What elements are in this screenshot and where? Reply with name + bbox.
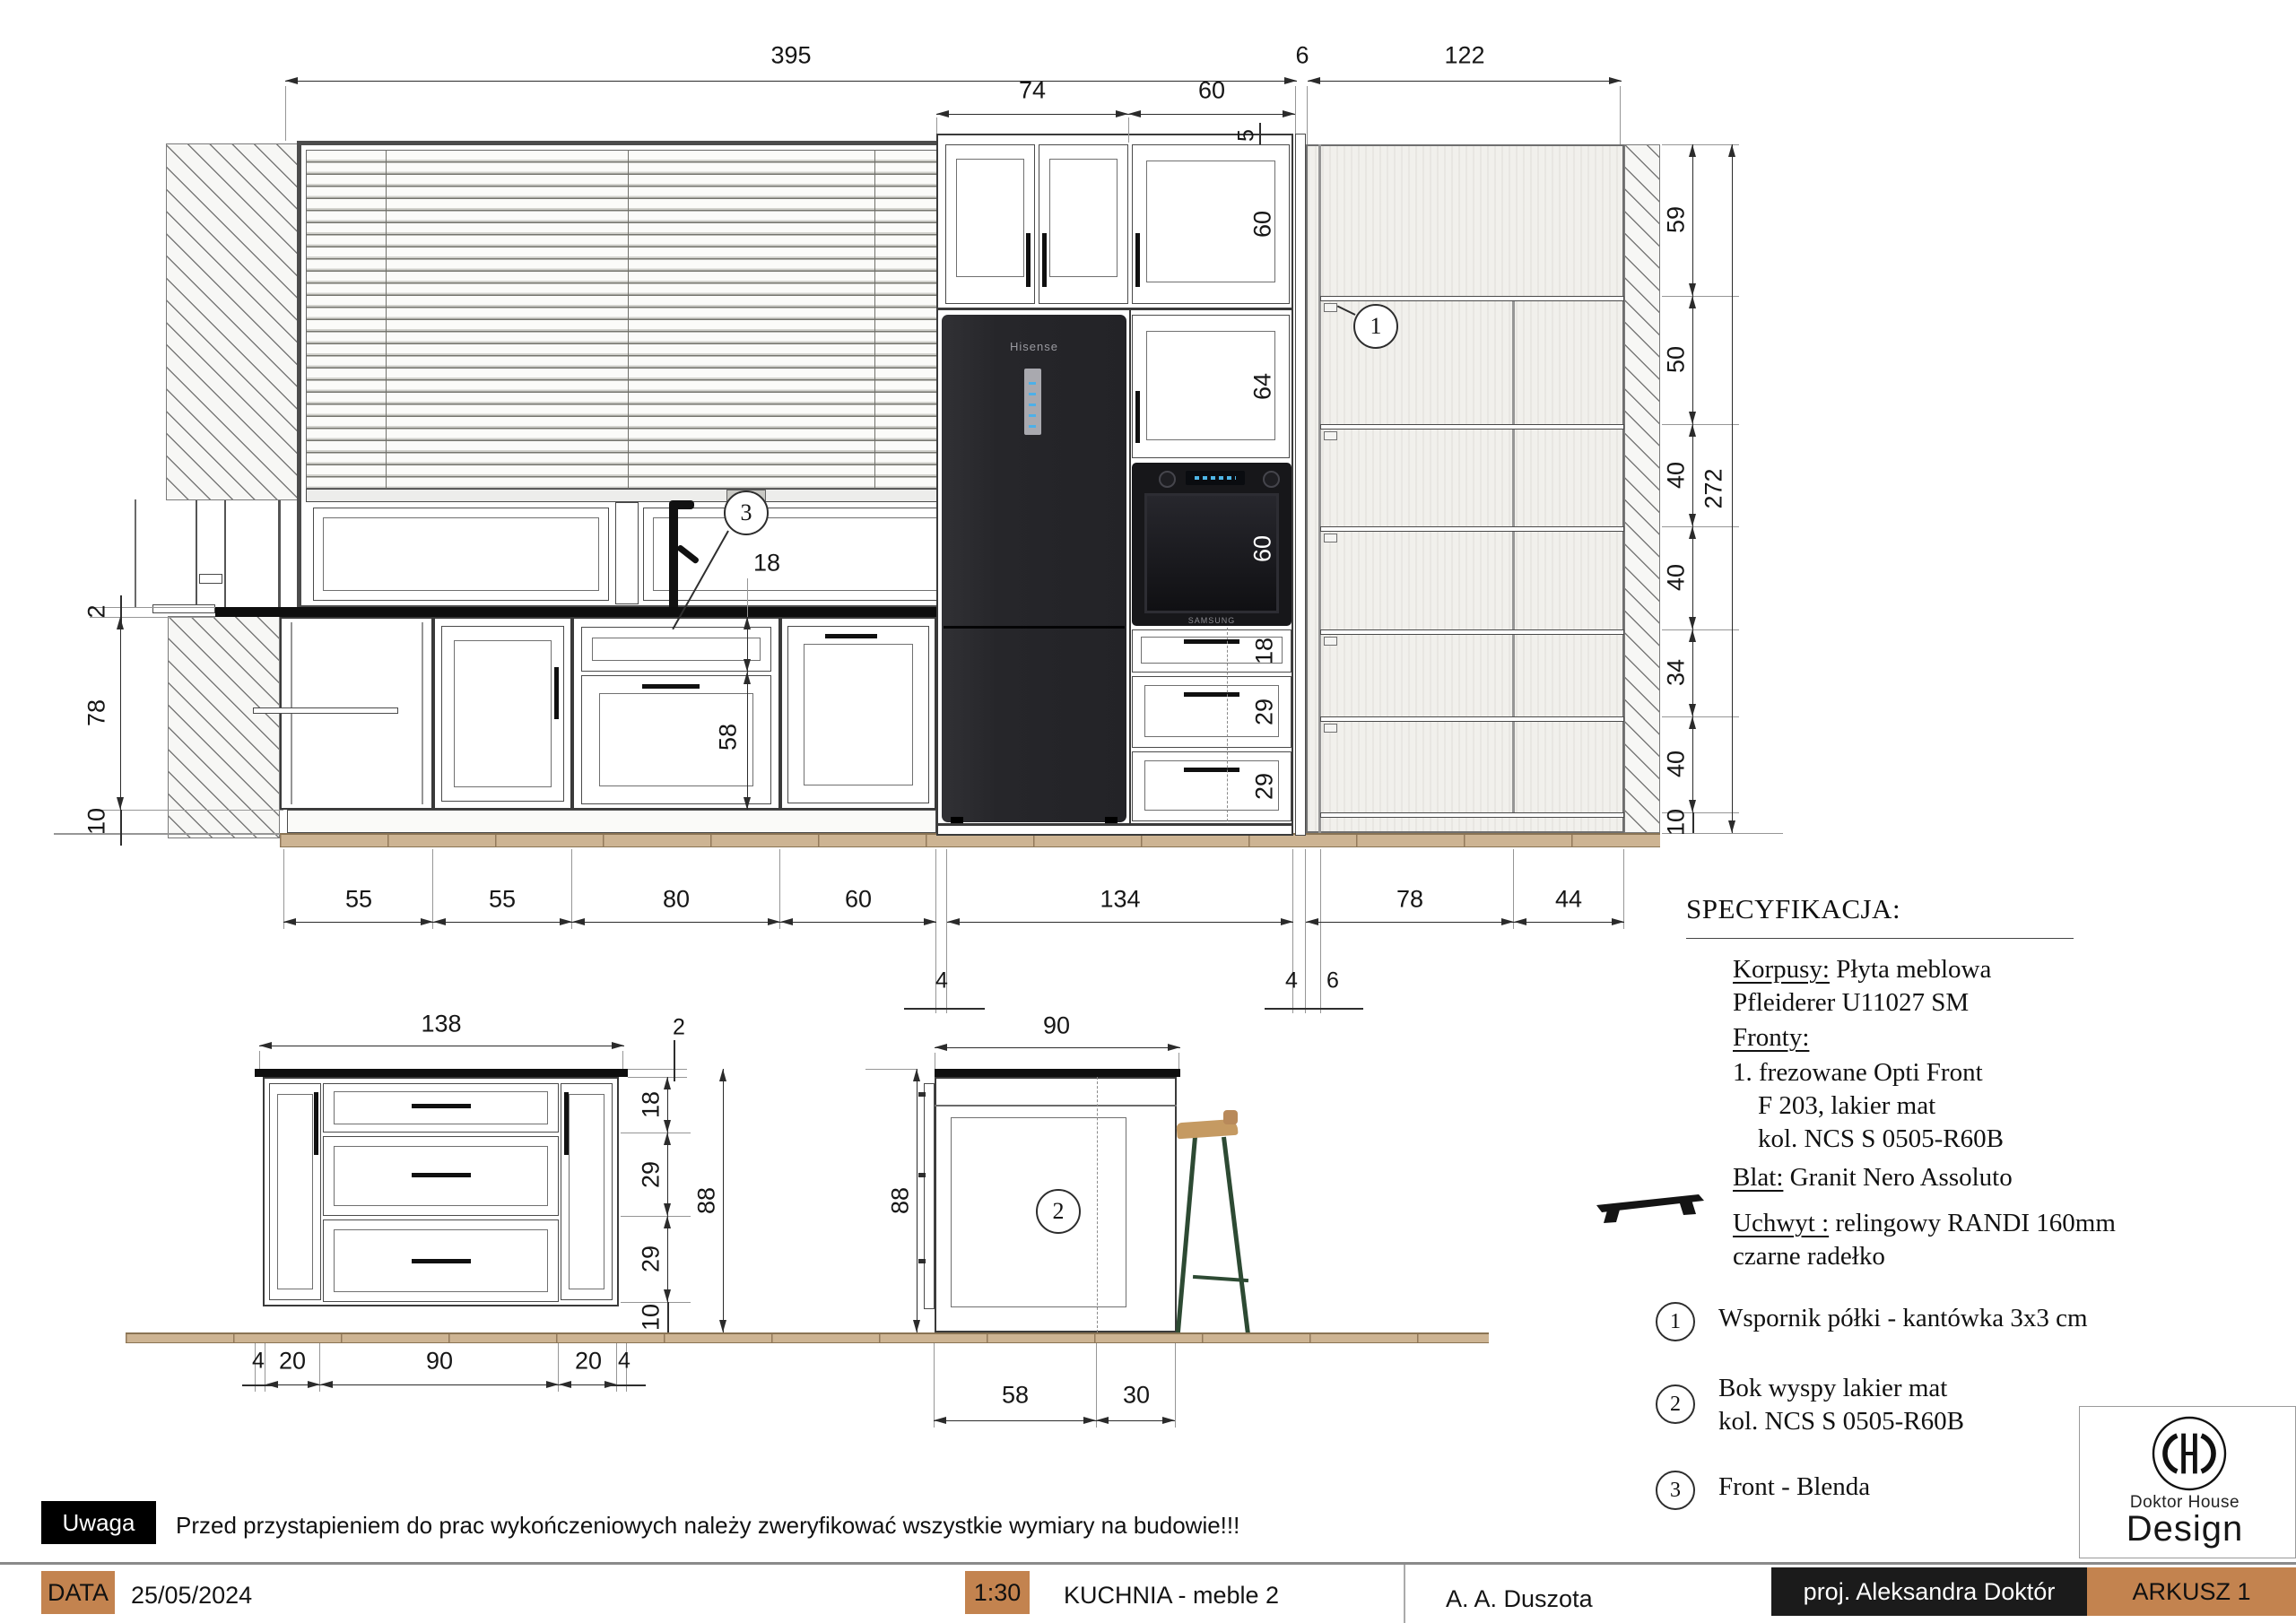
dim-line — [747, 617, 748, 672]
drawer-handle — [412, 1104, 471, 1108]
open-shelf — [253, 707, 398, 714]
shelf — [1320, 526, 1624, 532]
drawer-handle — [1184, 639, 1239, 644]
titleblock-separator — [0, 1562, 2296, 1565]
dim-extension-line — [90, 810, 283, 811]
dim-label: 78 — [85, 699, 109, 726]
window-glass-right-inner — [653, 517, 944, 591]
dim-extension-line — [1307, 86, 1308, 144]
spec-fronty-item2: F 203, lakier mat — [1733, 1091, 1935, 1120]
shelf — [1320, 424, 1624, 430]
dim-label: 55 — [345, 888, 372, 912]
dim-label: 20 — [279, 1350, 306, 1374]
countertop — [215, 607, 947, 617]
note-3-text: Front - Blenda — [1718, 1471, 1870, 1504]
dim-label: 29 — [639, 1245, 664, 1272]
dim-line — [723, 1069, 724, 1332]
dim-line-small — [606, 1384, 646, 1386]
callout-2-number: 2 — [1053, 1198, 1065, 1225]
cabinet-side-line — [422, 622, 423, 804]
dim-extension-line — [1623, 849, 1624, 929]
dim-line — [320, 1384, 559, 1385]
blind-cord — [386, 150, 387, 489]
dim-label: 272 — [1702, 468, 1726, 508]
callout-3: 3 — [724, 490, 769, 535]
dim-label: 44 — [1555, 888, 1582, 912]
blind-cord — [628, 150, 629, 489]
door-handle-vertical — [314, 1092, 318, 1155]
dim-extension-line — [571, 849, 572, 929]
dim-line — [1692, 424, 1693, 526]
scale-box: 1:30 — [965, 1571, 1030, 1614]
dim-label: 4 — [618, 1350, 631, 1373]
upper-door-1-inner — [956, 159, 1024, 277]
island-left-door-inner — [277, 1094, 313, 1289]
shelf — [1320, 296, 1624, 301]
dim-line — [265, 1384, 320, 1385]
tall-unit-shelf-line — [936, 308, 1293, 310]
handle-rail-icon — [1589, 1185, 1715, 1231]
dim-label: 18 — [639, 1091, 664, 1118]
dim-label: 2 — [85, 604, 109, 618]
date-value: 25/05/2024 — [131, 1582, 252, 1610]
note-2-text: Bok wyspy lakier mat — [1718, 1374, 1947, 1402]
shelf-bracket — [1324, 534, 1337, 542]
designer-box: proj. Aleksandra Doktór — [1771, 1567, 2087, 1616]
drawer-handle — [1184, 768, 1239, 772]
door-frame-line — [278, 500, 281, 607]
note-3-number: 3 — [1670, 1479, 1681, 1503]
dim-line — [259, 1046, 624, 1046]
wall-hatch-right — [1624, 144, 1660, 833]
dim-label: 18 — [1253, 638, 1277, 664]
dim-label: 78 — [1396, 888, 1423, 912]
island-countertop — [255, 1069, 628, 1077]
dim-line — [1732, 144, 1733, 833]
dim-label: 4 — [1285, 970, 1298, 993]
door-handle — [199, 574, 222, 584]
note-2-circle: 2 — [1656, 1384, 1695, 1424]
dim-label: 122 — [1444, 44, 1484, 68]
dim-extension-line — [90, 833, 280, 834]
spec-uchwyt-text: relingowy RANDI 160mm — [1829, 1209, 2116, 1237]
dim-label: 10 — [1665, 809, 1689, 836]
dim-label: 5 — [1236, 129, 1258, 142]
dim-extension-line — [1662, 424, 1739, 425]
dim-label: 40 — [1665, 564, 1689, 591]
door-handle-vertical — [1135, 391, 1140, 443]
faucet-spout — [669, 500, 694, 509]
island-right-door-inner — [569, 1094, 604, 1289]
dim-extension-line — [1662, 296, 1739, 297]
dim-extension-line — [628, 1077, 687, 1078]
spec-fronty-item3: kol. NCS S 0505-R60B — [1733, 1124, 2004, 1153]
dim-extension-line — [622, 1051, 623, 1069]
island-side-countertop — [935, 1069, 1180, 1077]
stool-leg — [1222, 1137, 1250, 1335]
note-2-text2: kol. NCS S 0505-R60B — [1718, 1407, 1964, 1436]
specification-block: SPECYFIKACJA: Korpusy: Płyta meblowa Pfl… — [1686, 892, 2117, 1275]
dim-extension-line — [1096, 1343, 1097, 1428]
scale-value: 1:30 — [974, 1579, 1022, 1607]
island-floor-strip — [126, 1332, 1489, 1343]
fridge-brand: Hisense — [942, 340, 1126, 353]
dim-label: 10 — [639, 1304, 664, 1331]
dim-extension-line — [1128, 117, 1129, 143]
shelf-bracket — [1324, 637, 1337, 646]
dim-line — [747, 672, 748, 810]
note-1-circle: 1 — [1656, 1302, 1695, 1341]
dim-line — [947, 922, 1293, 923]
dim-extension-line — [1320, 849, 1321, 1013]
drawer-handle — [642, 684, 700, 689]
stool-backrest — [1223, 1110, 1238, 1124]
spec-korpusy-label: Korpusy: — [1733, 955, 1830, 984]
drawer-handle — [412, 1173, 471, 1177]
dim-label: 60 — [845, 888, 872, 912]
blenda-inner — [592, 638, 761, 661]
date-label-box: DATA — [41, 1571, 115, 1614]
dim-extension-line — [1620, 86, 1621, 144]
dim-line — [1692, 716, 1693, 812]
dim-line-small — [904, 1008, 985, 1010]
dim-label: 80 — [663, 888, 690, 912]
dim-extension-line — [621, 1302, 691, 1303]
drawer-handle-profile — [918, 1092, 926, 1097]
dim-line — [120, 617, 121, 810]
dim-line — [667, 1077, 668, 1133]
oven-knob — [1159, 471, 1176, 488]
sheet-number: ARKUSZ 1 — [2132, 1578, 2250, 1606]
dim-extension-line — [1513, 849, 1514, 929]
dim-line — [667, 1133, 668, 1216]
dim-label: 6 — [1295, 44, 1309, 68]
dim-extension-line — [934, 1343, 935, 1428]
warning-label: Uwaga — [63, 1509, 135, 1537]
dim-label: 395 — [770, 44, 811, 68]
sheet-number-box: ARKUSZ 1 — [2087, 1567, 2296, 1616]
blind-bottom-rail — [306, 489, 953, 502]
dim-label: 88 — [695, 1187, 719, 1214]
dim-line — [1692, 526, 1693, 629]
fridge-freezer-split — [944, 626, 1125, 629]
specification-title: SPECYFIKACJA: — [1686, 892, 2074, 939]
dim-label: 2 — [673, 1017, 685, 1039]
drawing-sheet: Hisense SAMSUNG 60 64 60 18 29 29 — [0, 0, 2296, 1623]
dim-label: 59 — [1665, 206, 1689, 233]
note-1-number: 1 — [1670, 1310, 1681, 1334]
dim-label: 58 — [717, 724, 741, 751]
dim-line — [433, 922, 572, 923]
dim-label: 60 — [1251, 535, 1275, 562]
callout-1-number: 1 — [1370, 313, 1382, 340]
dim-extension-line — [285, 86, 286, 141]
dim-line — [1128, 114, 1295, 115]
dim-extension-line — [1175, 1343, 1176, 1428]
dim-line — [935, 1047, 1180, 1048]
author-name: A. A. Duszota — [1446, 1585, 1593, 1613]
logo-monogram-icon — [2150, 1414, 2229, 1497]
note-1: 1 Wspornik półki - kantówka 3x3 cm — [1656, 1302, 2230, 1341]
door-frame-line — [135, 499, 136, 607]
wall-hatch-upper-left — [166, 143, 299, 500]
logo-box: Doktor House Design — [2079, 1406, 2296, 1558]
dim-line — [1096, 1420, 1175, 1421]
dim-label: 29 — [1253, 773, 1277, 800]
door-handle-vertical — [554, 667, 559, 719]
drawer-handle — [1184, 692, 1239, 697]
dim-extension-line — [1295, 86, 1296, 134]
dim-label: 20 — [575, 1350, 602, 1374]
callout-3-number: 3 — [741, 499, 752, 526]
dim-extension-line — [621, 1133, 691, 1133]
dim-label: 90 — [1043, 1014, 1070, 1038]
faucet-body — [669, 502, 678, 610]
spec-uchwyt-label: Uchwyt : — [1733, 1209, 1829, 1237]
dim-label: 64 — [1251, 373, 1275, 400]
dishwasher-inner — [804, 644, 913, 785]
oven-display — [1186, 471, 1245, 485]
note-2-number: 2 — [1670, 1393, 1681, 1417]
dim-line — [283, 922, 433, 923]
door-handle-vertical — [564, 1092, 569, 1155]
dim-extension-line — [779, 849, 780, 929]
dim-label: 29 — [1253, 699, 1277, 725]
window-mullion — [615, 502, 639, 604]
spec-blat-text: Granit Nero Assoluto — [1783, 1163, 2012, 1192]
dim-extension-line — [936, 117, 937, 134]
dim-label: 40 — [1665, 751, 1689, 777]
window-glass-left-inner — [323, 517, 599, 591]
dim-line — [1308, 81, 1622, 82]
door-frame-line — [224, 500, 226, 607]
dim-extension-line — [1305, 849, 1306, 1013]
shelf — [1320, 716, 1624, 722]
shelf-bracket — [1324, 431, 1337, 440]
stool-leg — [1176, 1137, 1197, 1336]
overhang-dashed-line — [1097, 1077, 1098, 1332]
dim-label: 74 — [1019, 79, 1046, 103]
dim-line-small — [1259, 123, 1261, 144]
dim-label: 88 — [889, 1187, 913, 1214]
dim-line — [780, 922, 936, 923]
spec-korpusy-text: Płyta meblowa — [1830, 955, 1991, 984]
drawer-handle-profile — [918, 1173, 926, 1177]
dim-line — [1692, 144, 1693, 296]
dim-label: 58 — [1002, 1384, 1029, 1408]
dim-label: 60 — [1198, 79, 1225, 103]
dim-label: 55 — [489, 888, 516, 912]
callout-1: 1 — [1353, 304, 1398, 349]
upper-door-2-inner — [1049, 159, 1118, 277]
dim-extension-line — [621, 1216, 691, 1217]
dim-extension-line — [283, 849, 284, 929]
dim-label: 138 — [421, 1012, 461, 1037]
dim-line — [934, 1420, 1096, 1421]
warning-label-box: Uwaga — [41, 1501, 156, 1544]
side-blenda-panel — [1295, 134, 1306, 836]
dim-line — [285, 81, 1297, 82]
spec-korpusy-line2: Pfleiderer U11027 SM — [1733, 988, 1969, 1017]
dim-extension-line — [628, 1069, 687, 1070]
dim-line-small — [667, 1302, 669, 1332]
window-blinds — [306, 150, 953, 489]
shelf-base-board — [1320, 812, 1624, 818]
dim-extension-line — [1662, 526, 1739, 527]
dim-label: 29 — [639, 1161, 664, 1188]
dim-line-small — [1692, 812, 1694, 833]
dishwasher-handle — [825, 634, 877, 638]
wall-hatch-below-counter — [168, 616, 280, 838]
dim-line — [1306, 922, 1514, 923]
drawer-handle-profile — [918, 1259, 926, 1263]
shelf-bracket — [1324, 303, 1337, 312]
dim-label: 4 — [252, 1350, 265, 1373]
dim-extension-line — [432, 849, 433, 929]
spec-fronty-label: Fronty: — [1733, 1023, 1809, 1052]
door-handle-vertical — [1042, 233, 1047, 287]
island-front-edge-strip — [924, 1083, 935, 1309]
designer-name: proj. Aleksandra Doktór — [1804, 1578, 2056, 1606]
dim-extension-line — [935, 1053, 935, 1069]
measure-dashed-line — [1227, 628, 1228, 821]
dim-line — [936, 114, 1128, 115]
spec-fronty-item1: 1. frezowane Opti Front — [1733, 1058, 1983, 1087]
dim-extension-line — [1178, 1053, 1179, 1069]
drawing-title: KUCHNIA - meble 2 — [1064, 1582, 1279, 1610]
dim-line-small — [120, 810, 122, 846]
blind-cord — [874, 150, 875, 489]
plinth — [287, 810, 936, 833]
dim-extension-line — [1662, 716, 1739, 717]
dim-line — [1514, 922, 1624, 923]
dim-line — [572, 922, 780, 923]
oven-knob — [1263, 471, 1280, 488]
note-1-text: Wspornik półki - kantówka 3x3 cm — [1718, 1302, 2088, 1335]
tall-unit-divider — [1129, 310, 1131, 825]
dim-label: 30 — [1123, 1384, 1150, 1408]
door-handle-vertical — [1135, 233, 1140, 287]
dim-label: 40 — [1665, 462, 1689, 489]
shelving-divider — [1512, 296, 1515, 812]
titleblock-divider — [1404, 1565, 1405, 1623]
dim-extension-line — [1662, 629, 1739, 630]
dim-label: 60 — [1251, 211, 1275, 238]
dim-line — [917, 1069, 918, 1332]
dim-extension-line — [259, 1051, 260, 1069]
dim-extension-line — [865, 1069, 917, 1070]
dim-label: 18 — [753, 551, 780, 576]
dim-line — [1692, 296, 1693, 424]
spec-blat-label: Blat: — [1733, 1163, 1783, 1192]
logo-line2: Design — [2080, 1509, 2290, 1549]
island-side-rail-line — [935, 1105, 1177, 1107]
tall-unit-plinth-line — [936, 823, 1293, 826]
warning-text: Przed przystapieniem do prac wykończenio… — [176, 1512, 1239, 1540]
door-handle-vertical — [1026, 233, 1031, 287]
dim-label: 134 — [1100, 888, 1140, 912]
dim-extension-line — [747, 578, 748, 617]
door-inner-panel — [454, 640, 552, 787]
dim-line — [667, 1216, 668, 1302]
note-3-circle: 3 — [1656, 1471, 1695, 1510]
fridge: Hisense — [942, 315, 1126, 822]
dim-label: 10 — [85, 808, 109, 835]
dim-line-small — [674, 1040, 675, 1081]
shelving-side-panel — [1318, 144, 1321, 833]
oven-brand: SAMSUNG — [1132, 616, 1291, 625]
shelf-bracket — [1324, 724, 1337, 733]
dim-line — [1692, 629, 1693, 716]
windowsill-ledge — [152, 604, 215, 613]
drawer-handle — [412, 1259, 471, 1263]
dim-label: 34 — [1665, 659, 1689, 686]
door-frame-line — [196, 500, 197, 607]
dim-label: 4 — [935, 970, 948, 993]
dim-label: 6 — [1326, 970, 1339, 993]
dim-label: 90 — [426, 1350, 453, 1374]
dim-line-small — [1265, 1008, 1363, 1010]
fridge-control-panel — [1024, 369, 1041, 435]
callout-2: 2 — [1036, 1189, 1081, 1234]
dim-label: 50 — [1665, 346, 1689, 373]
date-label: DATA — [48, 1579, 109, 1607]
open-shelving — [1306, 144, 1624, 833]
shelf — [1320, 629, 1624, 635]
spec-uchwyt-line2: czarne radełko — [1733, 1242, 1885, 1271]
